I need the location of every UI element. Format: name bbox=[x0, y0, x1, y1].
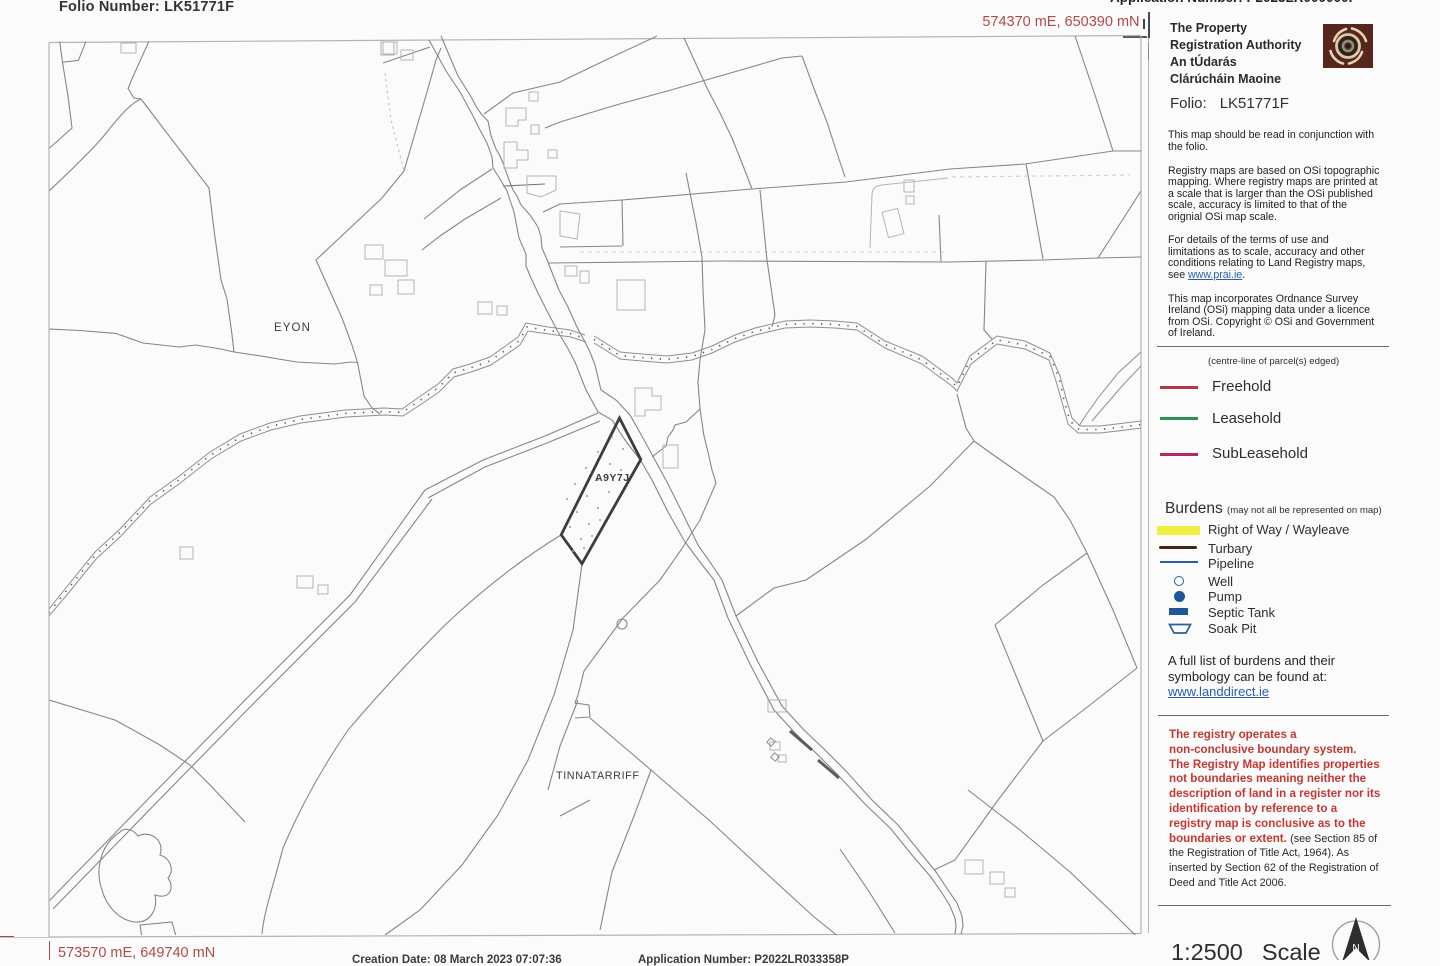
svg-text:N: N bbox=[1352, 943, 1359, 954]
svg-text:TINNATARRIFF: TINNATARRIFF bbox=[556, 770, 640, 782]
svg-text:A9Y7J: A9Y7J bbox=[595, 472, 630, 484]
svg-text:EYON: EYON bbox=[274, 322, 311, 334]
